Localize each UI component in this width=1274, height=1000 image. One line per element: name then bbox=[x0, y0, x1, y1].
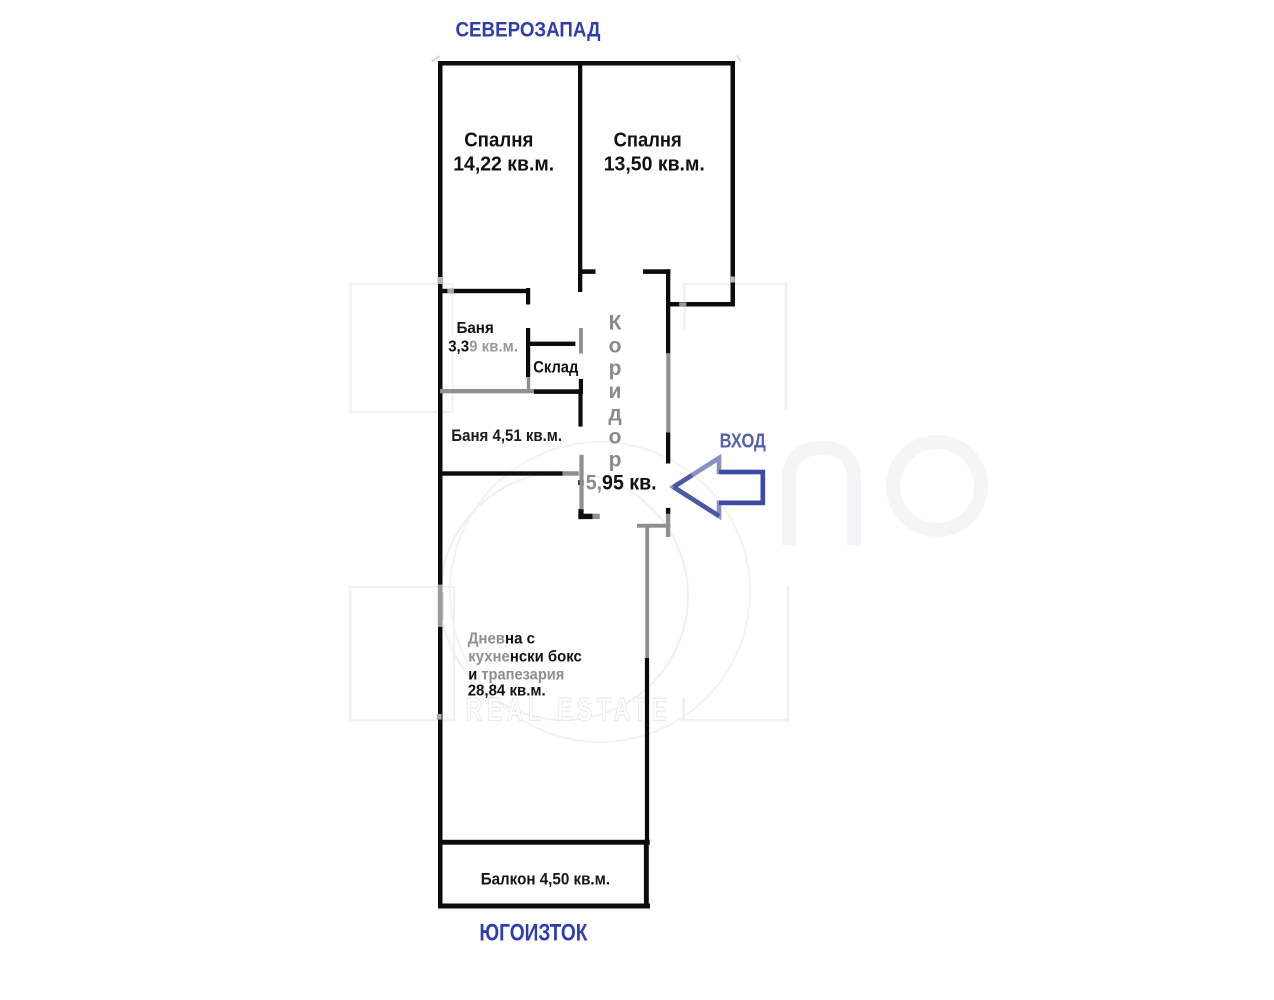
svg-text:р: р bbox=[609, 357, 622, 380]
svg-text:Баня 4,51 кв.м.: Баня 4,51 кв.м. bbox=[451, 427, 562, 445]
svg-text:13,50 кв.м.: 13,50 кв.м. bbox=[604, 154, 705, 176]
svg-text:о: о bbox=[609, 426, 622, 449]
svg-text:3,39 кв.м.: 3,39 кв.м. bbox=[448, 338, 518, 355]
svg-text:5,95 кв.: 5,95 кв. bbox=[586, 471, 657, 495]
svg-text:Спалня: Спалня bbox=[614, 129, 682, 151]
svg-text:Балкон 4,50 кв.м.: Балкон 4,50 кв.м. bbox=[481, 871, 610, 889]
svg-text:о: о bbox=[609, 334, 622, 357]
svg-text:д: д bbox=[608, 403, 621, 426]
svg-text:28,84 кв.м.: 28,84 кв.м. bbox=[468, 682, 546, 699]
svg-text:14,22 кв.м.: 14,22 кв.м. bbox=[453, 154, 554, 176]
svg-text:кухненски бокс: кухненски бокс bbox=[468, 648, 582, 665]
svg-text:ЮГОИЗТОК: ЮГОИЗТОК bbox=[479, 919, 587, 946]
svg-text:Баня: Баня bbox=[457, 320, 494, 337]
svg-text:р: р bbox=[609, 448, 622, 471]
svg-text:Дневна с: Дневна с bbox=[468, 630, 535, 647]
svg-text:СЕВЕРОЗАПАД: СЕВЕРОЗАПАД bbox=[456, 18, 601, 41]
svg-text:Склад: Склад bbox=[533, 359, 578, 377]
svg-text:и трапезария: и трапезария bbox=[468, 666, 564, 683]
svg-text:К: К bbox=[609, 312, 622, 335]
svg-text:и: и bbox=[609, 380, 622, 403]
svg-text:Спалня: Спалня bbox=[464, 129, 533, 151]
svg-text:ВХОД: ВХОД bbox=[720, 431, 766, 453]
